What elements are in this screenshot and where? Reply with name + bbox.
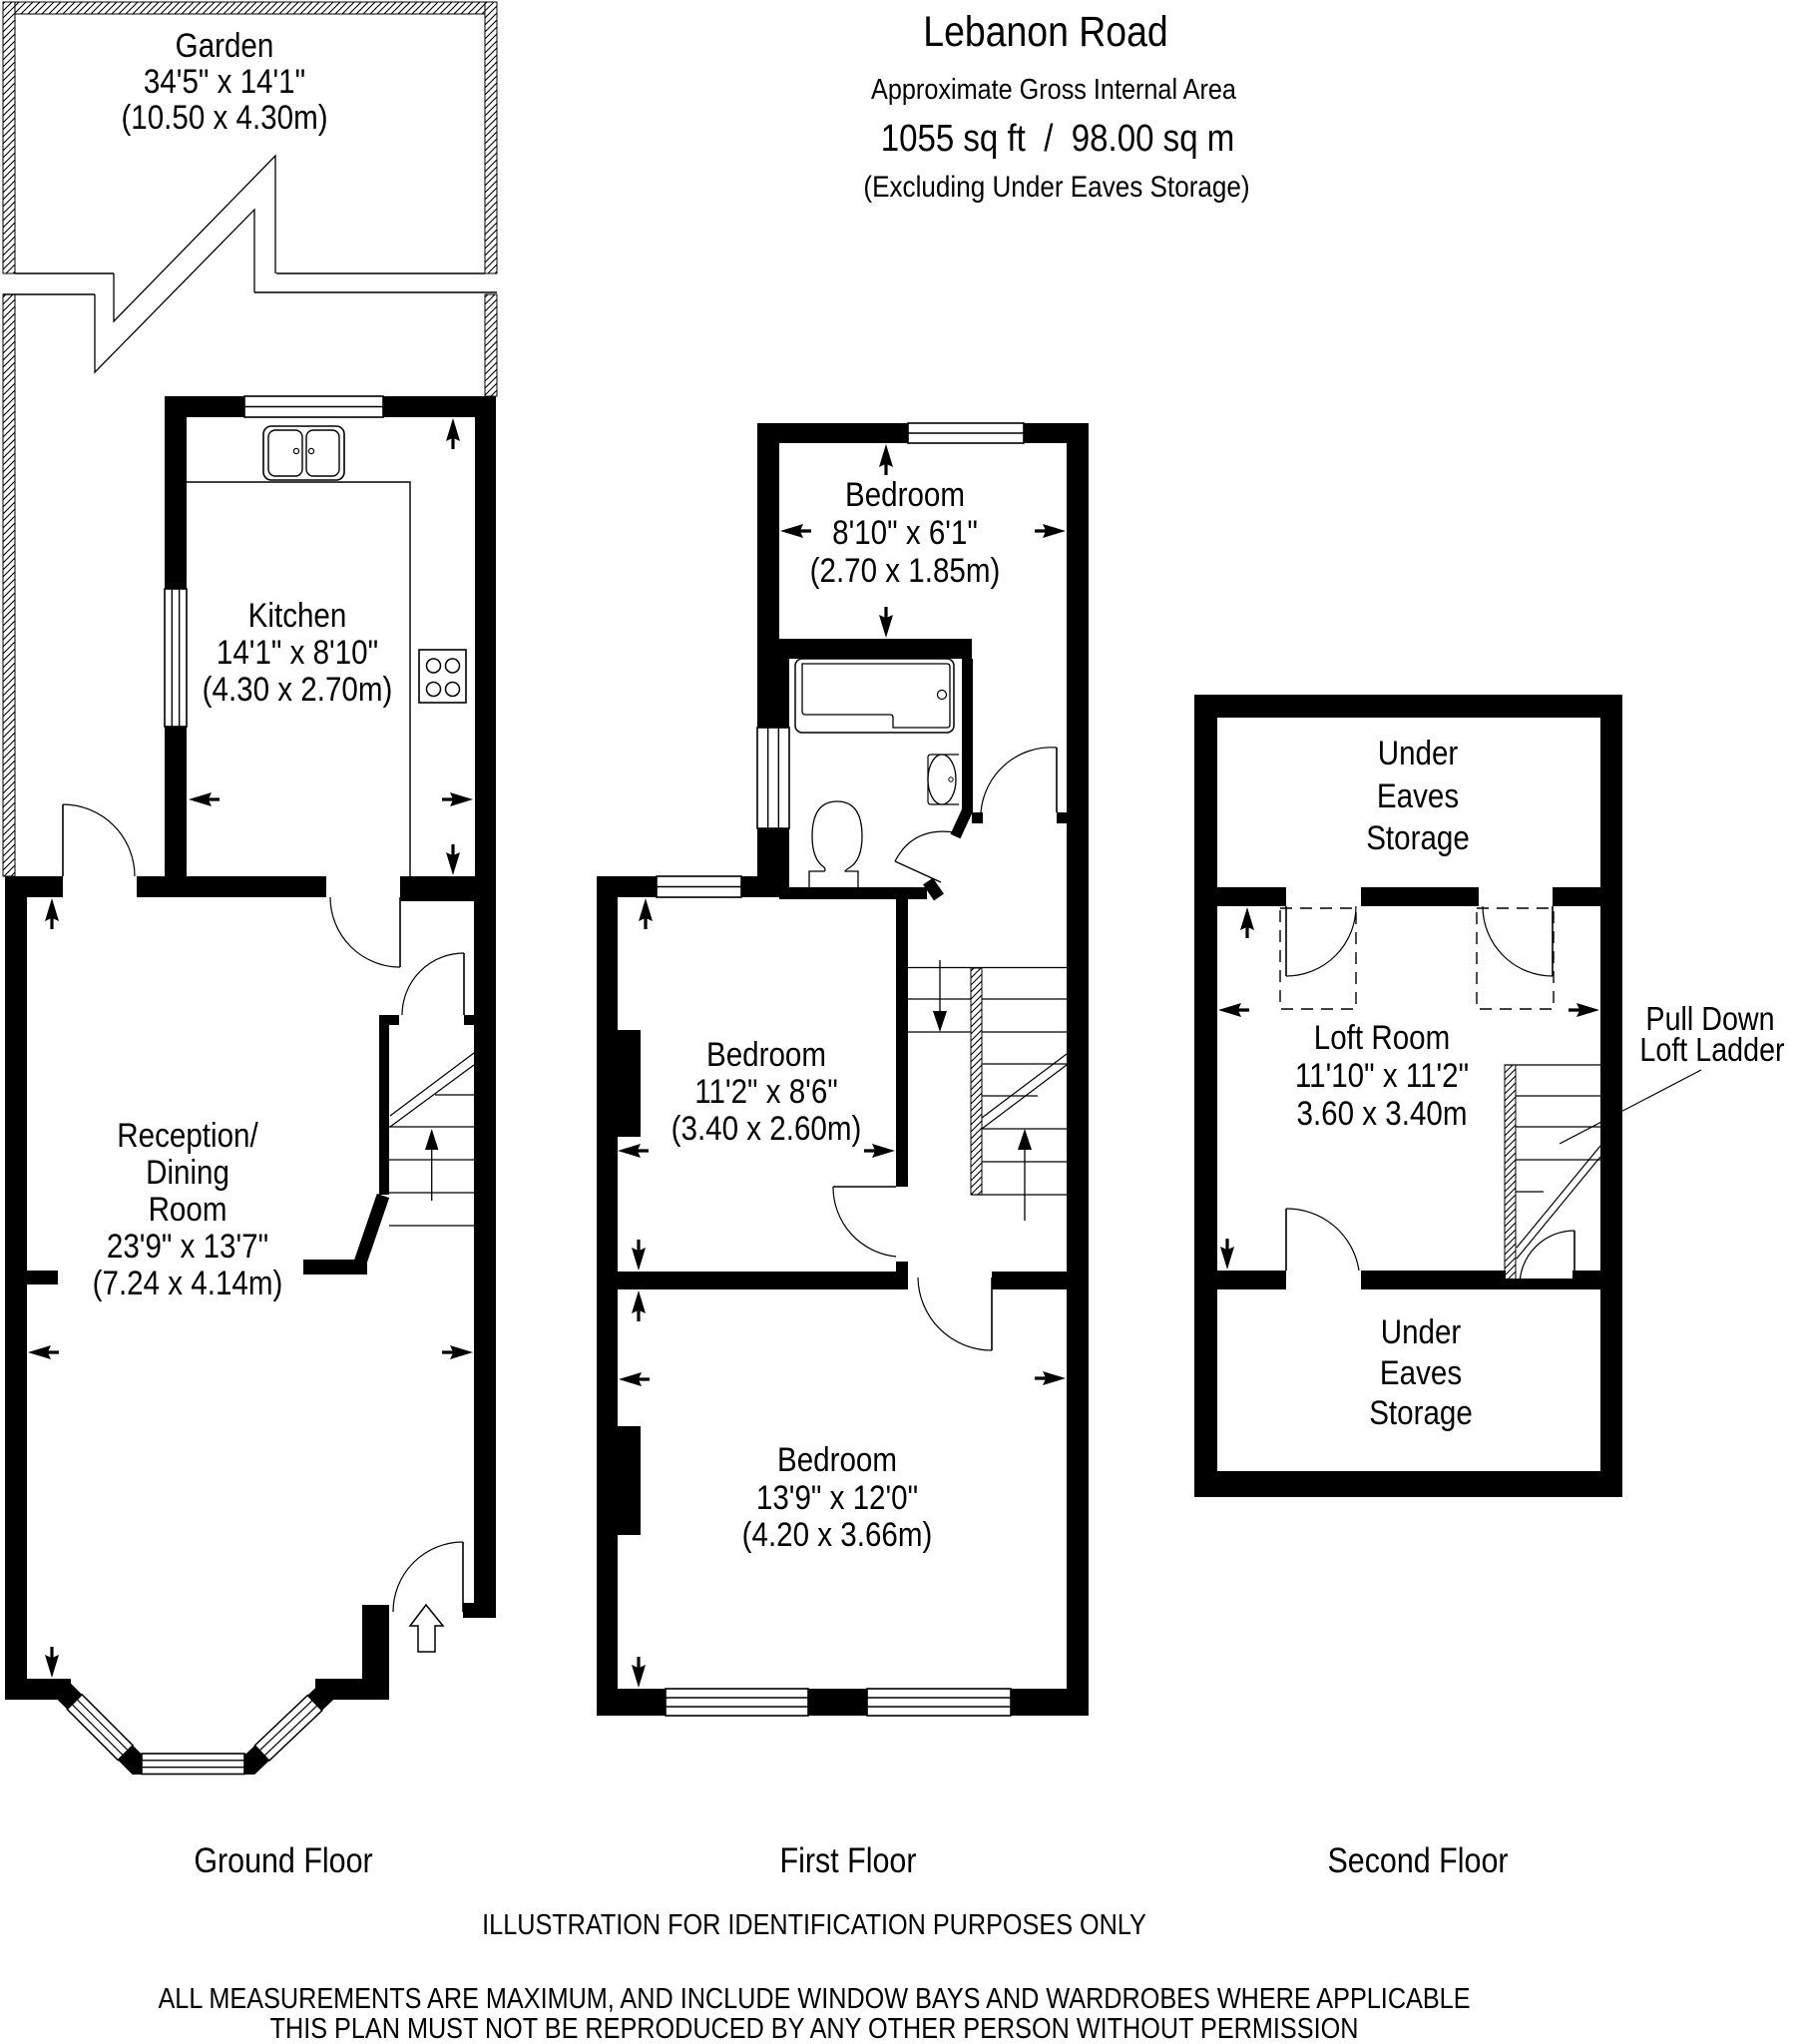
svg-text:11'2" x 8'6": 11'2" x 8'6"	[694, 1072, 838, 1110]
svg-text:(7.24 x 4.14m): (7.24 x 4.14m)	[93, 1264, 283, 1301]
svg-text:Storage: Storage	[1369, 1393, 1473, 1431]
svg-text:8'10" x 6'1": 8'10" x 6'1"	[832, 513, 978, 551]
svg-text:(4.20 x 3.66m): (4.20 x 3.66m)	[742, 1515, 933, 1553]
svg-text:34'5" x 14'1": 34'5" x 14'1"	[144, 62, 305, 100]
svg-text:(4.30 x 2.70m): (4.30 x 2.70m)	[203, 670, 393, 708]
svg-text:14'1" x 8'10": 14'1" x 8'10"	[217, 633, 378, 671]
svg-text:ALL MEASUREMENTS ARE MAXIMUM,: ALL MEASUREMENTS ARE MAXIMUM, AND INCLUD…	[158, 1981, 1470, 2014]
svg-text:Loft Ladder: Loft Ladder	[1639, 1031, 1784, 1068]
svg-text:23'9" x 13'7": 23'9" x 13'7"	[107, 1227, 268, 1265]
svg-text:Approximate Gross Internal Are: Approximate Gross Internal Area	[871, 72, 1237, 105]
svg-text:Dining: Dining	[146, 1153, 229, 1191]
svg-text:Eaves: Eaves	[1380, 1353, 1462, 1391]
svg-text:THIS PLAN MUST NOT BE REPRODUC: THIS PLAN MUST NOT BE REPRODUCED BY ANY …	[270, 2011, 1359, 2044]
svg-text:13'9" x 12'0": 13'9" x 12'0"	[756, 1478, 918, 1516]
svg-text:Storage: Storage	[1366, 818, 1470, 856]
svg-text:Under: Under	[1378, 734, 1459, 771]
svg-text:Eaves: Eaves	[1377, 776, 1459, 814]
svg-text:(3.40 x 2.60m): (3.40 x 2.60m)	[672, 1109, 862, 1147]
svg-text:Bedroom: Bedroom	[777, 1440, 897, 1478]
svg-text:Loft Room: Loft Room	[1314, 1018, 1450, 1056]
svg-text:ILLUSTRATION FOR IDENTIFICATIO: ILLUSTRATION FOR IDENTIFICATION PURPOSES…	[482, 1907, 1146, 1940]
svg-text:11'10" x 11'2": 11'10" x 11'2"	[1295, 1056, 1469, 1094]
svg-text:Under: Under	[1381, 1312, 1462, 1350]
svg-text:1055 sq ft / 98.00 sq m: 1055 sq ft / 98.00 sq m	[881, 117, 1235, 160]
svg-text:(2.70 x 1.85m): (2.70 x 1.85m)	[810, 551, 1001, 589]
svg-text:Reception/: Reception/	[117, 1116, 258, 1154]
svg-text:(Excluding Under Eaves Storage: (Excluding Under Eaves Storage)	[863, 170, 1249, 203]
svg-text:Bedroom: Bedroom	[706, 1035, 826, 1073]
svg-text:First Floor: First Floor	[779, 1840, 916, 1879]
svg-text:3.60 x 3.40m: 3.60 x 3.40m	[1297, 1094, 1468, 1132]
svg-text:Room: Room	[149, 1190, 227, 1228]
svg-text:(10.50 x 4.30m): (10.50 x 4.30m)	[121, 98, 327, 136]
svg-text:Second Floor: Second Floor	[1327, 1840, 1508, 1879]
svg-text:Kitchen: Kitchen	[248, 596, 347, 634]
svg-text:Bedroom: Bedroom	[845, 475, 965, 513]
svg-text:Ground Floor: Ground Floor	[194, 1840, 372, 1879]
svg-text:Lebanon Road: Lebanon Road	[923, 8, 1167, 56]
svg-text:Garden: Garden	[176, 26, 274, 64]
